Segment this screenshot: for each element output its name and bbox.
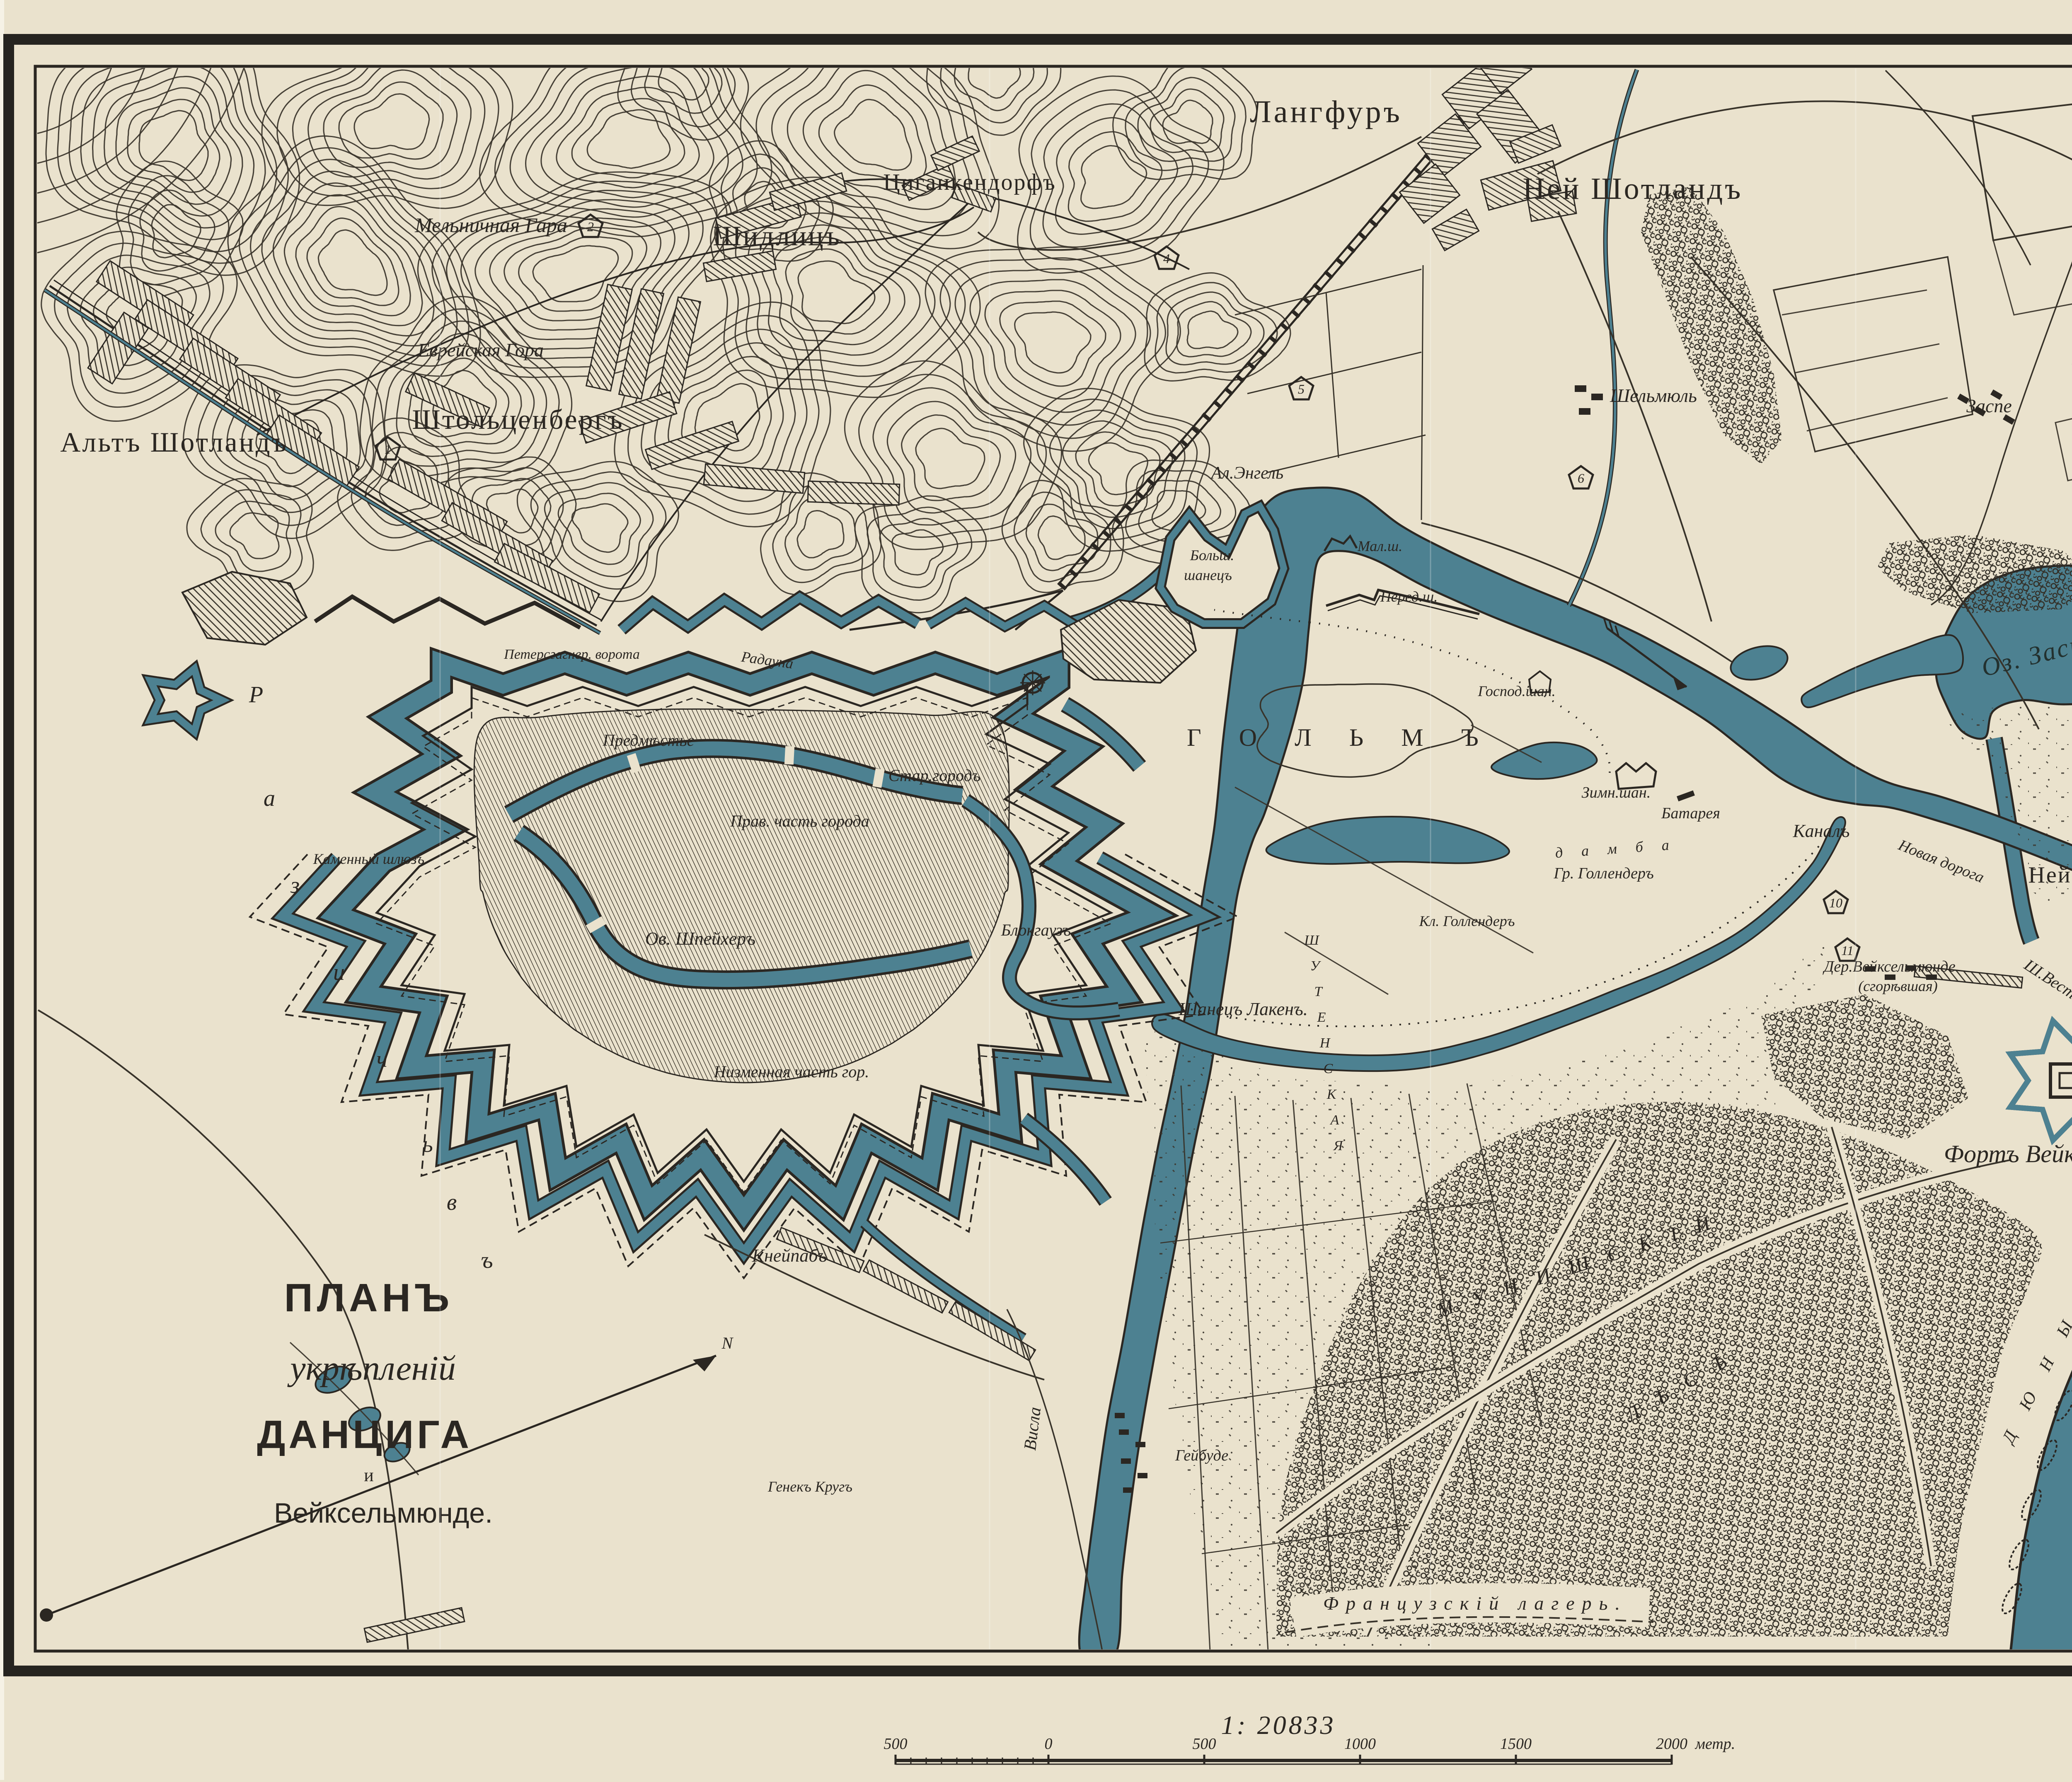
svg-text:1500: 1500 <box>1500 1735 1532 1753</box>
svg-text:Е: Е <box>1317 1010 1326 1025</box>
svg-text:Еврейская Гора: Еврейская Гора <box>417 339 544 360</box>
svg-text:5: 5 <box>1298 382 1305 397</box>
svg-text:Шидлицъ: Шидлицъ <box>713 220 841 251</box>
svg-text:Ней Шотландъ: Ней Шотландъ <box>1523 172 1743 206</box>
svg-text:2000: 2000 <box>1656 1735 1687 1753</box>
svg-text:в: в <box>447 1190 457 1215</box>
svg-text:Французскій лагерь.: Французскій лагерь. <box>1323 1593 1627 1614</box>
svg-text:Прав. часть города: Прав. часть города <box>730 812 869 830</box>
svg-text:Ш: Ш <box>1304 933 1319 948</box>
svg-text:ч: ч <box>377 1047 388 1072</box>
svg-text:метр.: метр. <box>1694 1735 1736 1753</box>
svg-text:Гр. Голлендеръ: Гр. Голлендеръ <box>1553 865 1653 882</box>
svg-text:Низменная часть гор.: Низменная часть гор. <box>714 1062 869 1081</box>
svg-text:11: 11 <box>1841 943 1854 958</box>
svg-text:Кл. Голлендеръ: Кл. Голлендеръ <box>1419 913 1515 929</box>
svg-text:N: N <box>721 1334 734 1352</box>
svg-text:Альтъ Шотландъ: Альтъ Шотландъ <box>60 426 288 458</box>
svg-text:К: К <box>1326 1087 1337 1102</box>
svg-text:Ал.Энгель: Ал.Энгель <box>1210 464 1283 483</box>
svg-text:шанецъ: шанецъ <box>1184 567 1232 583</box>
svg-text:укрѣпленій: укрѣпленій <box>287 1349 456 1388</box>
svg-text:А: А <box>1330 1112 1339 1128</box>
svg-text:Штольценбергъ: Штольценбергъ <box>412 404 624 435</box>
svg-text:Шельмюль: Шельмюль <box>1610 385 1697 406</box>
svg-text:Заспе: Заспе <box>1966 395 2012 416</box>
svg-text:ПЛАНЪ: ПЛАНЪ <box>284 1276 454 1320</box>
svg-text:и: и <box>364 1465 374 1485</box>
svg-text:Лангфуръ: Лангфуръ <box>1250 94 1402 129</box>
svg-text:Господ.шан.: Господ.шан. <box>1477 683 1555 699</box>
svg-text:Н: Н <box>1319 1035 1331 1051</box>
svg-text:Мельничная Гара: Мельничная Гара <box>414 213 567 237</box>
svg-text:1: 20833: 1: 20833 <box>1221 1710 1336 1740</box>
svg-text:Больш.: Больш. <box>1190 547 1234 563</box>
svg-text:Блокгаузъ: Блокгаузъ <box>1001 921 1071 939</box>
svg-text:Генекъ Кругъ: Генекъ Кругъ <box>767 1478 852 1495</box>
svg-text:Гейбуде: Гейбуде <box>1175 1447 1228 1464</box>
svg-text:Зимн.шан.: Зимн.шан. <box>1582 784 1651 801</box>
svg-text:Циганкендорфъ: Циганкендорфъ <box>883 169 1056 195</box>
svg-text:Я: Я <box>1333 1138 1343 1153</box>
svg-text:С: С <box>1324 1061 1333 1076</box>
svg-text:з: з <box>290 873 300 898</box>
svg-text:Батарея: Батарея <box>1661 805 1720 822</box>
svg-text:4: 4 <box>1163 251 1170 266</box>
svg-text:Ней Фарвассеръ: Ней Фарвассеръ <box>2028 862 2072 888</box>
svg-text:Шанецъ Лакенъ.: Шанецъ Лакенъ. <box>1178 999 1308 1019</box>
svg-text:Мал.ш.: Мал.ш. <box>1357 538 1402 554</box>
svg-text:Р: Р <box>249 682 263 708</box>
svg-text:Каналъ: Каналъ <box>1792 821 1849 841</box>
svg-text:и: и <box>333 960 345 985</box>
svg-text:1: 1 <box>385 442 391 457</box>
svg-text:(сгорѣвшая): (сгорѣвшая) <box>1858 978 1938 994</box>
svg-text:1000: 1000 <box>1344 1735 1376 1753</box>
svg-text:Г О Л Ь М Ъ: Г О Л Ь М Ъ <box>1187 724 1494 751</box>
svg-text:Перед.ш.: Перед.ш. <box>1380 588 1438 605</box>
svg-text:ъ: ъ <box>481 1248 493 1273</box>
svg-text:10: 10 <box>1829 895 1842 910</box>
svg-text:ь: ь <box>422 1132 433 1157</box>
svg-text:6: 6 <box>1578 471 1584 486</box>
svg-text:Каменный шлюзъ: Каменный шлюзъ <box>313 851 424 867</box>
svg-text:Фортъ Вейксельмюнде: Фортъ Вейксельмюнде <box>1944 1140 2072 1168</box>
svg-text:Кнейпабъ: Кнейпабъ <box>752 1245 827 1266</box>
svg-text:а: а <box>264 786 275 811</box>
svg-text:Т: Т <box>1314 984 1323 999</box>
svg-text:500: 500 <box>884 1735 908 1753</box>
svg-text:500: 500 <box>1193 1735 1216 1753</box>
svg-text:Предмѣстье: Предмѣстье <box>603 731 695 750</box>
svg-text:Петерсгагнер. ворота: Петерсгагнер. ворота <box>503 647 640 662</box>
svg-text:2: 2 <box>587 219 594 234</box>
svg-text:Ов. Шпейхеръ: Ов. Шпейхеръ <box>645 928 755 949</box>
svg-text:Стар.городъ: Стар.городъ <box>888 766 980 785</box>
svg-text:Дер.Вейксельмюнде: Дер.Вейксельмюнде <box>1823 958 1956 975</box>
svg-text:0: 0 <box>1045 1735 1053 1753</box>
